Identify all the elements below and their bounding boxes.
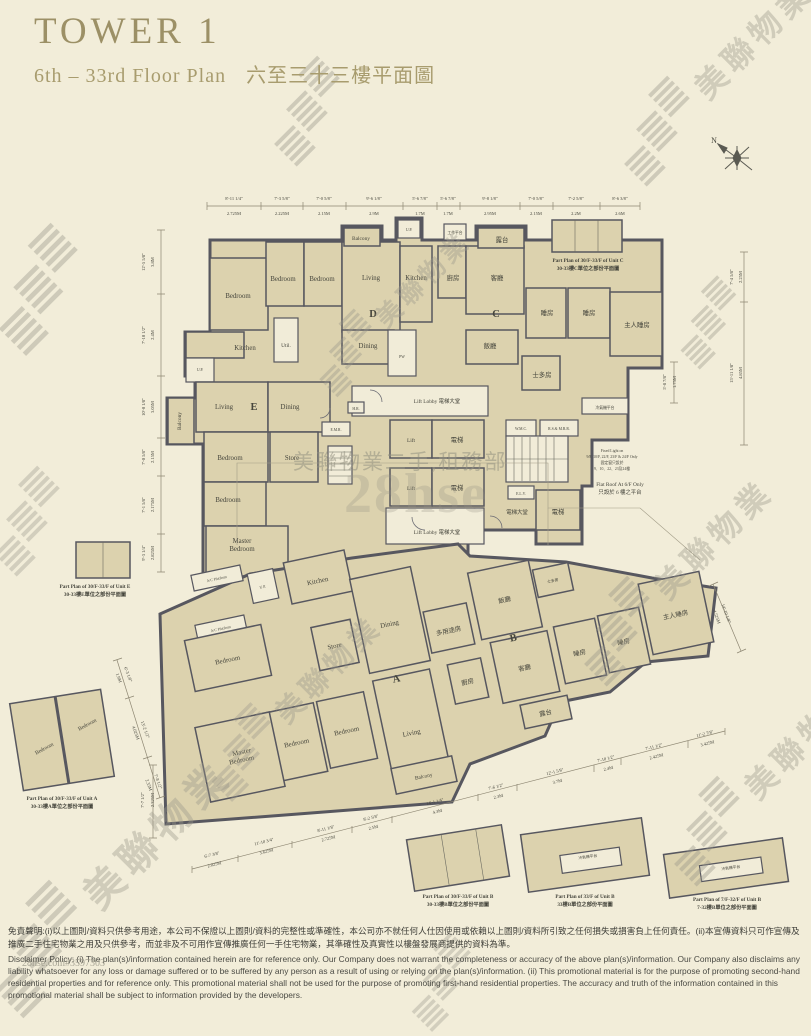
svg-text:9'-6 1/8": 9'-6 1/8" [366,196,382,201]
unit-letter-d: D [369,309,377,320]
room-d-util [274,318,298,362]
svg-text:14'-10 1/8": 14'-10 1/8" [720,603,732,624]
svg-text:4.85M: 4.85M [738,367,743,379]
part-plan-b1: Part Plan of 30/F-33/F of Unit B 30-33樓B… [407,825,510,908]
part-plan-caption: Part Plan of 30/F-33/F of Unit C [553,258,624,264]
svg-text:2.225M: 2.225M [275,211,289,216]
room-label: 睡房 [583,308,596,317]
room-label: Bedroom [309,276,335,283]
svg-text:2.725M: 2.725M [321,834,336,842]
svg-text:1.7M: 1.7M [415,211,425,216]
room-label: 士多房 [532,370,551,379]
room-label: U.P. [406,228,412,232]
svg-text:8'-11 1/8": 8'-11 1/8" [317,824,335,833]
room-label: Living [215,404,234,411]
subtitle-zh: 六至三十三樓平面圖 [246,65,435,87]
svg-text:2.15M: 2.15M [318,211,330,216]
part-plan-caption: 30-33樓B單位之部份平面圖 [427,900,489,908]
room-label: 主人睡房 [624,320,650,329]
dims-right-c: 7'-4 5/8"2.25M 15'-11 1/8"4.85M [729,252,748,445]
svg-text:7'-0 5/8": 7'-0 5/8" [528,196,544,201]
svg-text:7'-0 5/8": 7'-0 5/8" [141,449,146,465]
svg-text:2.6M: 2.6M [615,211,625,216]
svg-text:5'-6 7/8": 5'-6 7/8" [412,196,428,201]
disclaimer-zh: 免責聲明:(i)以上圖則/資料只供參考用途，本公司不保證以上圖則/資料的完整性或… [8,925,803,951]
svg-text:7'-7 1/2": 7'-7 1/2" [140,792,145,808]
svg-text:2.025M: 2.025M [207,860,222,868]
room-label: Dining [359,343,378,350]
room-label: Living [362,275,381,282]
svg-text:6'-3 1/8": 6'-3 1/8" [123,666,133,682]
compass-n-label: N [711,136,717,145]
core-label: Lift [407,437,416,444]
room-label: 冷氣機平台 [596,405,615,410]
dims-left: 12'-5 5/8"3.8M 7'-10 1/2"2.4M 10'-0 1/8"… [141,230,165,572]
part-plan-a: Bedroom Bedroom Part Plan of 30/F-33/F o… [10,689,115,810]
compass-rose: N [711,136,752,170]
svg-text:2.15M: 2.15M [530,211,542,216]
svg-text:3.425M: 3.425M [700,739,715,747]
room-label: Bedroom [270,276,296,283]
part-plan-caption: Part Plan of 33/F of Unit B [555,894,615,900]
room-label: Bedroom [225,293,251,300]
28hse-watermark: 28hse.com#3597303 [22,958,105,969]
svg-text:9'-3 1/4": 9'-3 1/4" [141,545,146,561]
room-label: 客廳 [491,273,504,282]
svg-text:7'-6 1/2": 7'-6 1/2" [488,782,504,791]
room-c-kitchen [438,246,466,298]
core-label: H.R. [352,407,359,411]
dims-right-mid: 5'-8 7/8"1.75M [662,362,678,403]
room-label: Balcony [352,236,370,242]
svg-text:2.3M: 2.3M [493,793,504,800]
svg-text:2.4M: 2.4M [603,765,614,772]
svg-text:2.5M: 2.5M [368,824,379,831]
room-label: 露台 [496,235,509,244]
room-label: Balcony [177,412,183,430]
room-e-bedroom-2 [204,482,266,526]
fixed-light-note: 9/F, 10/F, 22/F, 23/F & 24/F Only [586,455,637,460]
svg-text:2.425M: 2.425M [649,752,664,760]
page-title: TOWER 1 [34,10,435,53]
part-plan-caption: 30-33樓C單位之部份平面圖 [557,264,620,272]
dims-part-a: 6'-3 1/8"1.9M 13'-2 1/2"4.025M 7'-8 1/2"… [113,658,165,799]
svg-text:3.05M: 3.05M [150,401,155,413]
disclaimer: 免責聲明:(i)以上圖則/資料只供參考用途，本公司不保證以上圖則/資料的完整性或… [8,925,803,1002]
svg-text:2.25M: 2.25M [738,271,743,283]
room-d-bedroom-2 [266,242,304,306]
svg-text:7'-3 5/8": 7'-3 5/8" [274,196,290,201]
svg-text:5'-8 7/8": 5'-8 7/8" [662,374,667,390]
28hse-watermark-big: 28hse [344,462,488,526]
svg-text:2.15M: 2.15M [150,451,155,463]
svg-text:7'-10 1/2": 7'-10 1/2" [141,326,146,344]
part-plan-c-box [552,220,622,252]
svg-text:8'-2 5/8": 8'-2 5/8" [363,813,379,822]
room-label: PW [399,355,405,359]
core-label: Lift Lobby 電梯大堂 [414,397,461,405]
svg-text:11'-10 3/4": 11'-10 3/4" [254,837,275,847]
room-label: Kitchen [234,345,256,352]
svg-text:2.825M: 2.825M [150,546,155,560]
room-label: U.P. [197,368,203,372]
svg-text:2.725M: 2.725M [227,211,241,216]
fixed-light-note: Fixed Light on [601,449,624,453]
room-label: Bedroom [229,546,255,553]
header: TOWER 1 6th – 33rd Floor Plan 六至三十三樓平面圖 [34,10,435,88]
part-plan-b2: 冷氣機平台 Part Plan of 33/F of Unit B 33樓B單位… [521,818,650,908]
room-pw [388,330,416,376]
fixed-light-note: 9、10、22、23及24樓 [594,466,630,471]
room-label: 廚房 [447,273,460,282]
svg-text:3.7M: 3.7M [552,778,563,785]
dims-top: 8'-11 1/4"2.725M 7'-3 5/8"2.225M 7'-0 5/… [207,196,640,216]
svg-text:6'-7 3/8": 6'-7 3/8" [204,850,220,859]
part-plan-caption: Part Plan of 7/F-32/F of Unit B [693,897,762,903]
part-plan-b1-box [407,825,510,891]
part-plan-b3: 冷氣機平台 Part Plan of 7/F-32/F of Unit B 7-… [664,838,789,911]
svg-text:4.3M: 4.3M [432,808,443,815]
room-d-kitchen [400,246,432,322]
svg-text:4.025M: 4.025M [131,725,141,740]
core-label: R.S.& M.R.R. [548,427,570,431]
core-label: E.L.V. [516,492,526,496]
svg-text:7'-11 1/2": 7'-11 1/2" [645,742,663,751]
notes: Fixed Light on 9/F, 10/F, 22/F, 23/F & 2… [586,449,644,496]
svg-text:2.9M: 2.9M [369,211,379,216]
core-label: 電梯大堂 [506,508,528,516]
unit-letter-c: C [492,309,500,320]
svg-text:1.7M: 1.7M [443,211,453,216]
part-plan-caption: 30-33樓A單位之部份平面圖 [31,802,94,810]
svg-text:10'-0 1/8": 10'-0 1/8" [141,398,146,416]
svg-text:2.4M: 2.4M [150,330,155,340]
room-label: Kitchen [405,275,427,282]
svg-text:2.175M: 2.175M [150,498,155,512]
room-d-bedroom-3 [304,242,342,306]
subtitle-en: 6th – 33rd Floor Plan [34,65,226,87]
room-label: Bedroom [217,455,243,462]
unit-letter-e: E [250,402,257,413]
part-plan-caption: Part Plan of 30/F-33/F of Unit B [423,894,494,900]
fixed-light-note: 固定窗只設於 [601,460,624,465]
svg-text:3.8M: 3.8M [150,257,155,267]
svg-text:3.625M: 3.625M [259,847,274,855]
disclaimer-en: Disclaimer Policy: (i) The plan(s)/infor… [8,953,803,1002]
flat-roof-note-zh: 只設於 6 樓之平台 [598,488,641,496]
flat-roof-note-en: Flat Roof At 6/F Only [596,481,644,488]
part-plan-caption: 33樓B單位之部份平面圖 [557,900,612,908]
svg-text:9'-8 1/8": 9'-8 1/8" [482,196,498,201]
part-plan-caption: Part Plan of 30/F-33/F of Unit A [27,796,98,802]
svg-text:8'-11 1/4": 8'-11 1/4" [225,196,243,201]
core-label: 電梯 [552,507,565,516]
core-label: E.M.R. [330,428,341,432]
svg-text:7'-2 5/8": 7'-2 5/8" [568,196,584,201]
part-plan-caption: 30-33樓E單位之部份平面圖 [64,590,126,598]
svg-text:15'-11 1/8": 15'-11 1/8" [729,363,734,383]
svg-text:7'-1 5/8": 7'-1 5/8" [141,497,146,513]
room-label: 睡房 [541,308,554,317]
page-subtitle: 6th – 33rd Floor Plan 六至三十三樓平面圖 [34,59,435,88]
part-plan-caption: 7-32樓B單位之部份平面圖 [697,903,757,911]
room-label: 飯廳 [484,341,497,350]
svg-text:7'-4 5/8": 7'-4 5/8" [729,269,734,285]
svg-text:11'-2 7/8": 11'-2 7/8" [696,729,714,738]
room-label: Util. [281,343,291,349]
core-label: W.M.C. [515,427,527,431]
svg-text:5'-6 7/8": 5'-6 7/8" [440,196,456,201]
svg-text:2.35M: 2.35M [144,778,153,791]
svg-text:2.2M: 2.2M [571,211,581,216]
room-label: Master [233,538,253,545]
part-plan-e: Part Plan of 30/F-33/F of Unit E 30-33樓E… [60,542,131,598]
room-label: 工作平台 [447,230,462,235]
svg-text:13'-2 1/2": 13'-2 1/2" [140,720,151,739]
svg-text:12'-5 5/8": 12'-5 5/8" [141,253,146,271]
svg-text:8'-6 3/8": 8'-6 3/8" [612,196,628,201]
svg-text:2.95M: 2.95M [484,211,496,216]
svg-text:1.75M: 1.75M [672,376,677,388]
svg-text:2.325M: 2.325M [150,793,155,807]
room-label: Bedroom [215,497,241,504]
part-plan-caption: Part Plan of 30/F-33/F of Unit E [60,584,131,590]
room-label: Dining [281,404,300,411]
core-label: 電梯 [451,435,464,444]
svg-text:7'-0 5/8": 7'-0 5/8" [316,196,332,201]
